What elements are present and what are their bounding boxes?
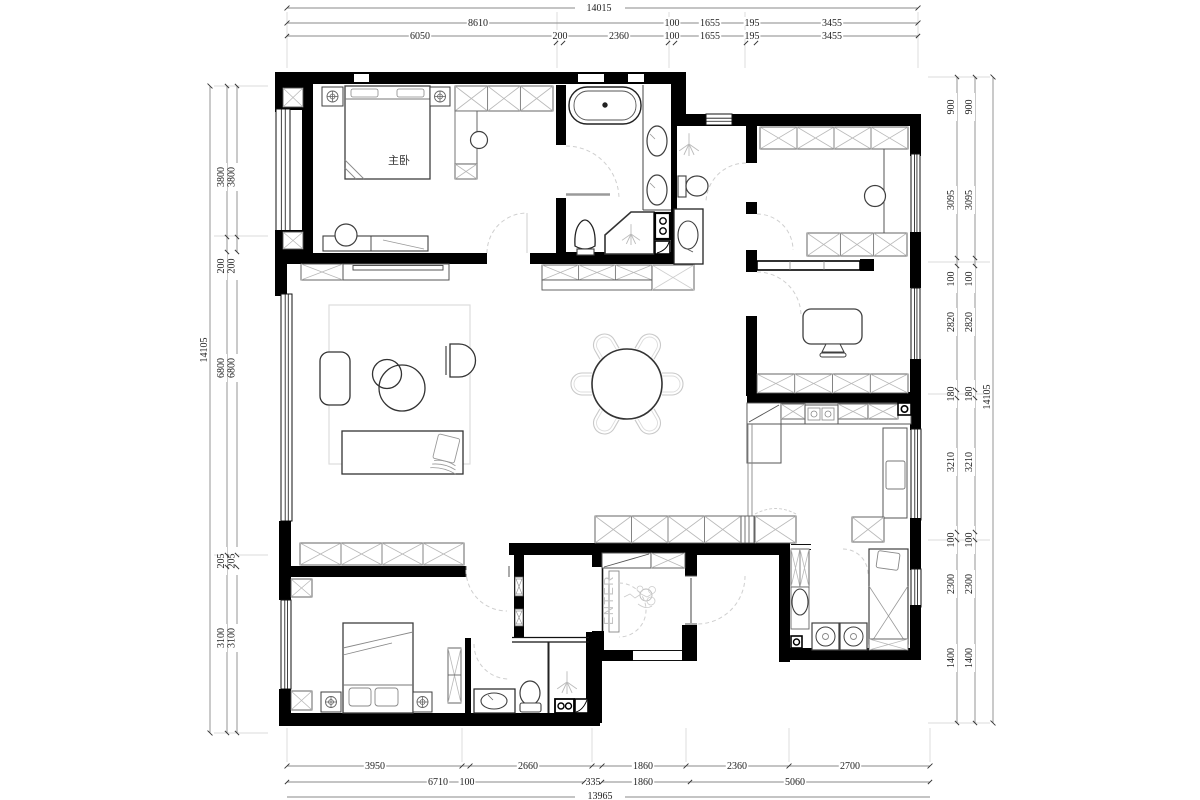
svg-text:2300: 2300	[964, 574, 975, 594]
svg-text:3100: 3100	[227, 628, 238, 648]
svg-text:3100: 3100	[216, 628, 227, 648]
svg-text:195: 195	[745, 31, 760, 42]
svg-text:6710: 6710	[428, 777, 448, 788]
svg-text:14105: 14105	[982, 385, 993, 410]
svg-text:200: 200	[227, 259, 238, 274]
svg-text:3210: 3210	[946, 452, 957, 472]
svg-text:6050: 6050	[410, 31, 430, 42]
svg-text:205: 205	[216, 554, 227, 569]
svg-text:3950: 3950	[365, 761, 385, 772]
svg-text:100: 100	[964, 533, 975, 548]
svg-text:2700: 2700	[840, 761, 860, 772]
svg-text:100: 100	[460, 777, 475, 788]
svg-text:2660: 2660	[518, 761, 538, 772]
svg-text:14105: 14105	[199, 338, 210, 363]
svg-text:900: 900	[964, 100, 975, 115]
svg-text:100: 100	[964, 272, 975, 287]
svg-text:1860: 1860	[633, 761, 653, 772]
svg-text:3800: 3800	[227, 167, 238, 187]
svg-text:14015: 14015	[587, 3, 612, 14]
svg-text:200: 200	[216, 259, 227, 274]
svg-text:3210: 3210	[964, 452, 975, 472]
svg-text:195: 195	[745, 18, 760, 29]
svg-text:100: 100	[946, 533, 957, 548]
svg-text:335: 335	[586, 777, 601, 788]
svg-text:2820: 2820	[946, 312, 957, 332]
svg-text:2360: 2360	[727, 761, 747, 772]
svg-text:2820: 2820	[964, 312, 975, 332]
svg-text:1655: 1655	[700, 31, 720, 42]
svg-text:1655: 1655	[700, 18, 720, 29]
svg-text:3800: 3800	[216, 167, 227, 187]
svg-text:2360: 2360	[609, 31, 629, 42]
svg-text:1400: 1400	[964, 648, 975, 668]
svg-text:8610: 8610	[468, 18, 488, 29]
svg-text:100: 100	[665, 18, 680, 29]
svg-text:3455: 3455	[822, 18, 842, 29]
svg-text:3455: 3455	[822, 31, 842, 42]
svg-text:900: 900	[946, 100, 957, 115]
svg-text:1860: 1860	[633, 777, 653, 788]
svg-text:100: 100	[946, 272, 957, 287]
svg-text:ENTER: ENTER	[602, 575, 616, 625]
svg-text:5060: 5060	[785, 777, 805, 788]
svg-text:6800: 6800	[227, 358, 238, 378]
svg-text:2300: 2300	[946, 574, 957, 594]
svg-text:100: 100	[665, 31, 680, 42]
svg-text:3095: 3095	[946, 190, 957, 210]
svg-text:3095: 3095	[964, 190, 975, 210]
svg-text:13965: 13965	[588, 791, 613, 800]
svg-text:主卧: 主卧	[388, 154, 410, 167]
svg-text:200: 200	[553, 31, 568, 42]
svg-text:1400: 1400	[946, 648, 957, 668]
svg-text:6800: 6800	[216, 358, 227, 378]
